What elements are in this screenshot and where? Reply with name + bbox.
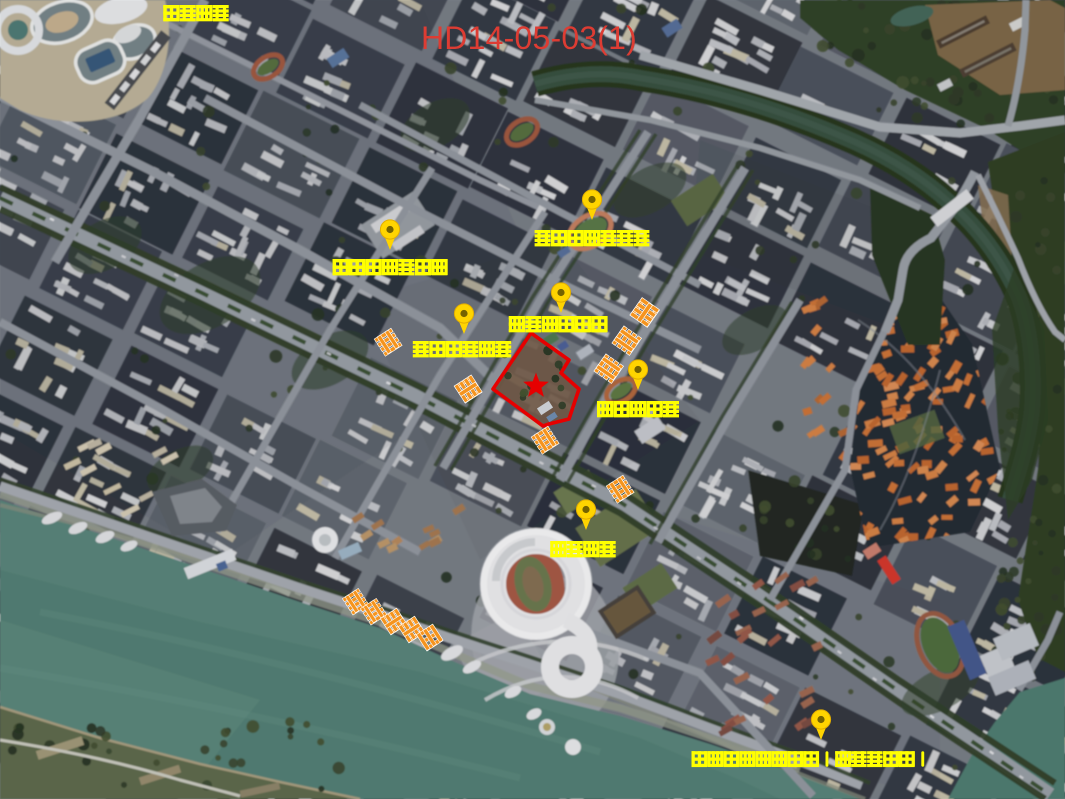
svg-text:HD14-05-03(1): HD14-05-03(1) <box>421 20 637 56</box>
